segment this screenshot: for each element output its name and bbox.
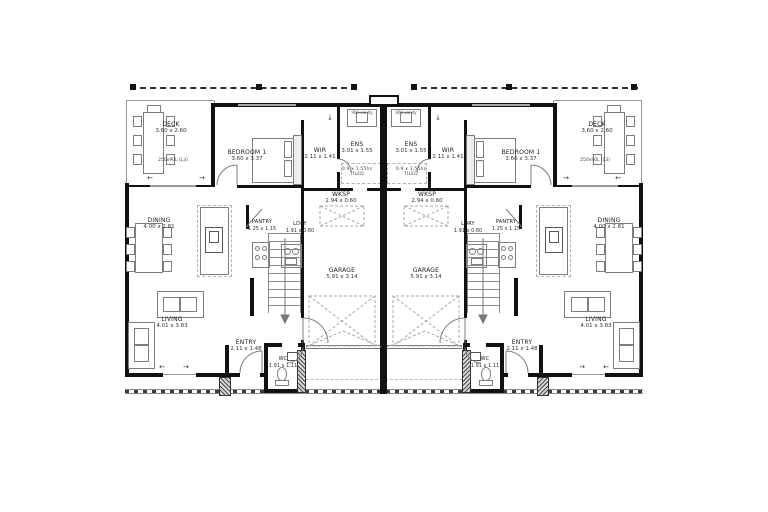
ldry-label: LDRY 1.91 x 0.60 xyxy=(278,221,322,235)
bedroom-door-arc xyxy=(217,165,237,185)
garage-door-guide xyxy=(306,331,343,347)
living-name: LIVING xyxy=(142,316,202,323)
ens-shower-note: TILED xyxy=(330,172,384,177)
door-swing-overlay xyxy=(0,0,768,512)
dining-label: DINING 4.00 x 2.81 xyxy=(129,217,189,231)
entry-label: ENTRY 2.11 x 1.48 xyxy=(217,339,275,353)
living-label: LIVING 4.01 x 3.83 xyxy=(142,316,202,330)
slider-arrow-icon: ← xyxy=(144,175,156,182)
stair-direction-arrowhead xyxy=(281,315,289,323)
ens-shower-label: 0.9 x 1.55hs TILED xyxy=(330,167,384,177)
bedroom1-name: BEDROOM 1 xyxy=(217,149,277,156)
entry-name: ENTRY xyxy=(217,339,275,346)
ens-label: ENS 3.01 x 1.55 xyxy=(328,141,386,155)
living-dims: 4.01 x 3.83 xyxy=(142,323,202,330)
wir-dims: 2.11 x 1.41 xyxy=(291,154,349,161)
dining-name: DINING xyxy=(129,217,189,224)
bedroom1-label: BEDROOM 1 3.60 x 3.37 xyxy=(217,149,277,163)
floor-plan-canvas: ← → ← → ↓ DECK 3.60 x 2.60 250x90L (L3) … xyxy=(0,0,768,512)
wc-name: WC xyxy=(262,356,304,363)
entry-door-arc xyxy=(240,351,262,373)
wksp-name: WKSP xyxy=(311,191,371,198)
ldry-name: LDRY xyxy=(278,221,322,228)
dining-dims: 4.00 x 2.81 xyxy=(129,224,189,231)
garage-label: GARAGE 5.91 x 3.14 xyxy=(312,267,372,281)
garage-entry-door-arc xyxy=(303,318,328,343)
ens-dims: 3.01 x 1.55 xyxy=(328,148,386,155)
bedroom1-dims: 3.60 x 3.37 xyxy=(217,156,277,163)
garage-door-guide xyxy=(343,331,381,347)
deck-note: 250x90L (L3) xyxy=(148,158,198,163)
ens-name: ENS xyxy=(328,141,386,148)
entry-dims: 2.11 x 1.48 xyxy=(217,346,275,353)
entry-path-arrow-icon: ↓ xyxy=(324,115,336,122)
deck-label: DECK 3.60 x 2.60 xyxy=(141,121,201,135)
garage-name: GARAGE xyxy=(312,267,372,274)
deck-dims: 3.60 x 2.60 xyxy=(141,128,201,135)
slider-arrow-icon: ← xyxy=(156,364,168,371)
deck-name: DECK xyxy=(141,121,201,128)
wc-dims: 1.91 x 1.11 xyxy=(262,363,304,370)
unit-left: ← → ← → ↓ DECK 3.60 x 2.60 250x90L (L3) … xyxy=(0,0,768,512)
garage-dims: 5.91 x 3.14 xyxy=(312,274,372,281)
slider-arrow-icon: → xyxy=(196,175,208,182)
wc-label: WC 1.91 x 1.11 xyxy=(262,356,304,370)
ldry-dims: 1.91 x 0.60 xyxy=(278,228,322,235)
wksp-label: WKSP 2.94 x 0.60 xyxy=(311,191,371,205)
wksp-dims: 2.94 x 0.60 xyxy=(311,198,371,205)
ens-vanity-note: 900 vanity xyxy=(345,111,379,116)
slider-arrow-icon: → xyxy=(180,364,192,371)
